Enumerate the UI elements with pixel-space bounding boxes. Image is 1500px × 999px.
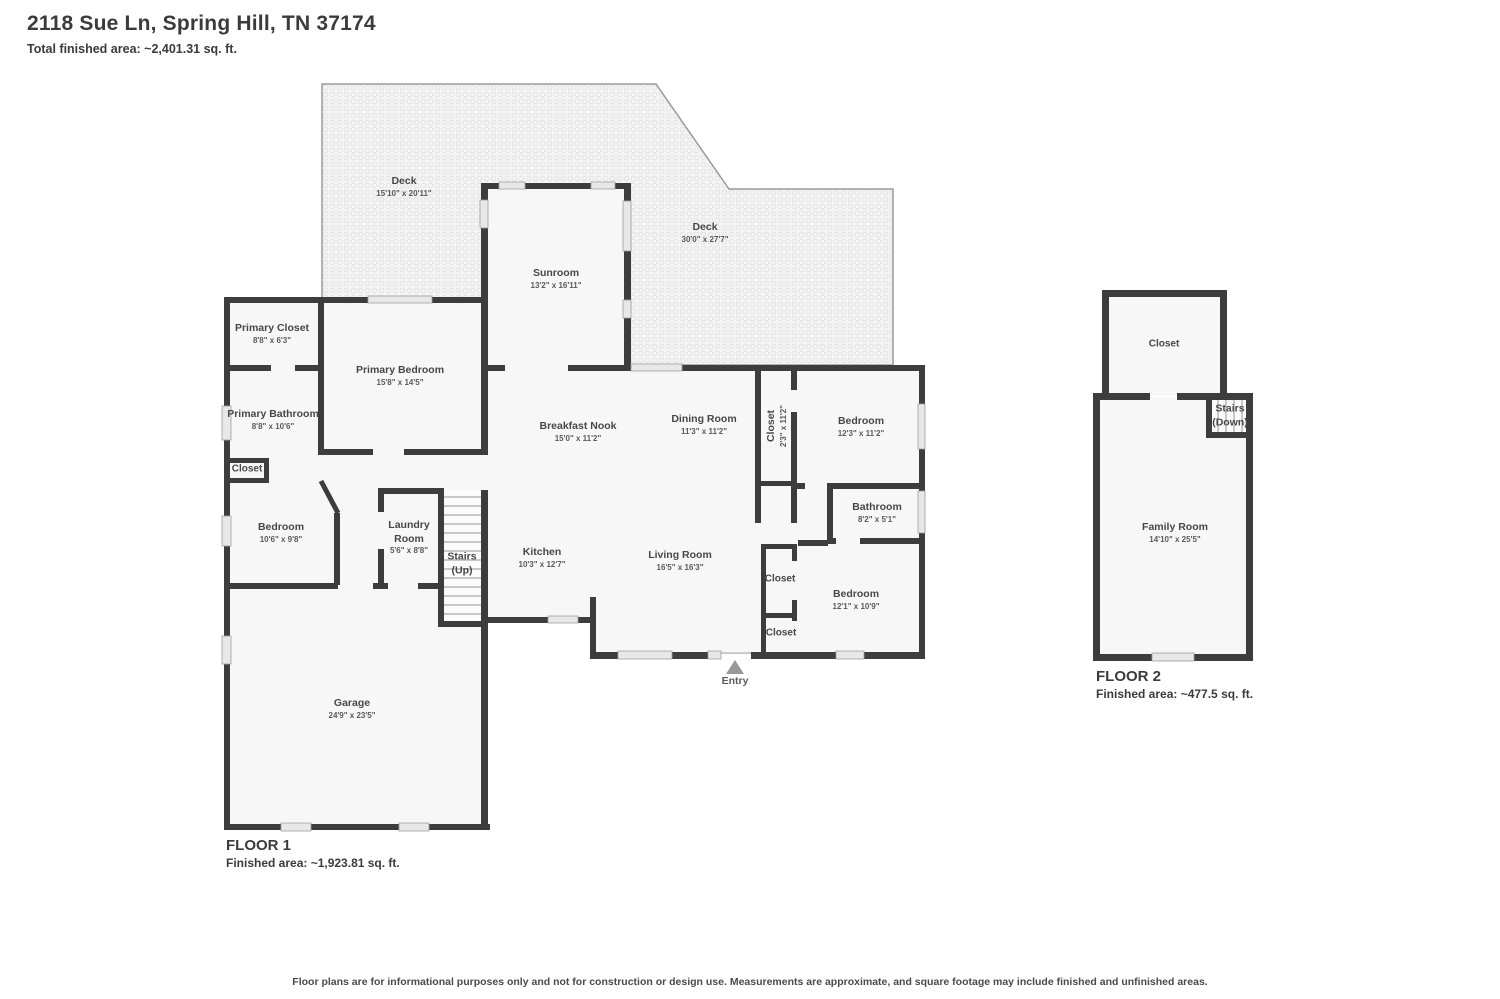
floor-plan-page: 2118 Sue Ln, Spring Hill, TN 37174 Total… [0, 0, 1500, 999]
room-label-bathroom: Bathroom 8'2" x 5'1" [852, 501, 902, 525]
room-label-laundry: Laundry Room 5'6" x 8'8" [379, 519, 439, 557]
room-label-primary-closet: Primary Closet 8'8" x 6'3" [235, 322, 309, 346]
entry-label: Entry [722, 675, 749, 689]
room-label-floor2-closet: Closet [1149, 338, 1180, 351]
entry-marker-icon [726, 660, 744, 674]
room-label-breakfast-nook: Breakfast Nook 15'0" x 11'2" [539, 420, 616, 444]
floor-plan-drawing [0, 0, 1500, 999]
room-label-family-room: Family Room 14'10" x 25'5" [1142, 521, 1208, 545]
room-label-bedroom-se: Bedroom 12'1" x 10'9" [833, 588, 880, 612]
room-label-closet-b: Closet [765, 573, 796, 586]
room-label-stairs-up: Stairs (Up) [447, 550, 476, 577]
room-label-deck-right: Deck 30'0" x 27'7" [682, 221, 729, 245]
room-label-stairs-down: Stairs (Down) [1212, 402, 1248, 429]
floor1-caption: FLOOR 1 Finished area: ~1,923.81 sq. ft. [226, 837, 400, 870]
room-label-closet-tall: Closet 2'3" x 11'2" [765, 405, 789, 447]
floor1-title: FLOOR 1 [226, 837, 400, 854]
room-label-closet-a: Closet [232, 463, 263, 476]
room-label-garage: Garage 24'9" x 23'5" [329, 697, 376, 721]
floor1-area: Finished area: ~1,923.81 sq. ft. [226, 856, 400, 870]
room-label-kitchen: Kitchen 10'3" x 12'7" [519, 546, 566, 570]
floor2-area: Finished area: ~477.5 sq. ft. [1096, 687, 1253, 701]
room-label-bedroom-left: Bedroom 10'6" x 9'8" [258, 521, 304, 545]
floor2-title: FLOOR 2 [1096, 668, 1253, 685]
floor2-caption: FLOOR 2 Finished area: ~477.5 sq. ft. [1096, 668, 1253, 701]
room-label-sunroom: Sunroom 13'2" x 16'11" [531, 267, 582, 291]
room-label-closet-c: Closet [766, 627, 797, 640]
room-label-dining-room: Dining Room 11'3" x 11'2" [671, 413, 736, 437]
room-label-primary-bathroom: Primary Bathroom 8'8" x 10'6" [227, 408, 319, 432]
room-label-living-room: Living Room 16'5" x 16'3" [648, 549, 712, 573]
disclaimer-text: Floor plans are for informational purpos… [0, 976, 1500, 988]
room-label-deck-left: Deck 15'10" x 20'11" [376, 175, 431, 199]
room-label-bedroom-ne: Bedroom 12'3" x 11'2" [838, 415, 885, 439]
room-label-primary-bedroom: Primary Bedroom 15'8" x 14'5" [356, 364, 444, 388]
